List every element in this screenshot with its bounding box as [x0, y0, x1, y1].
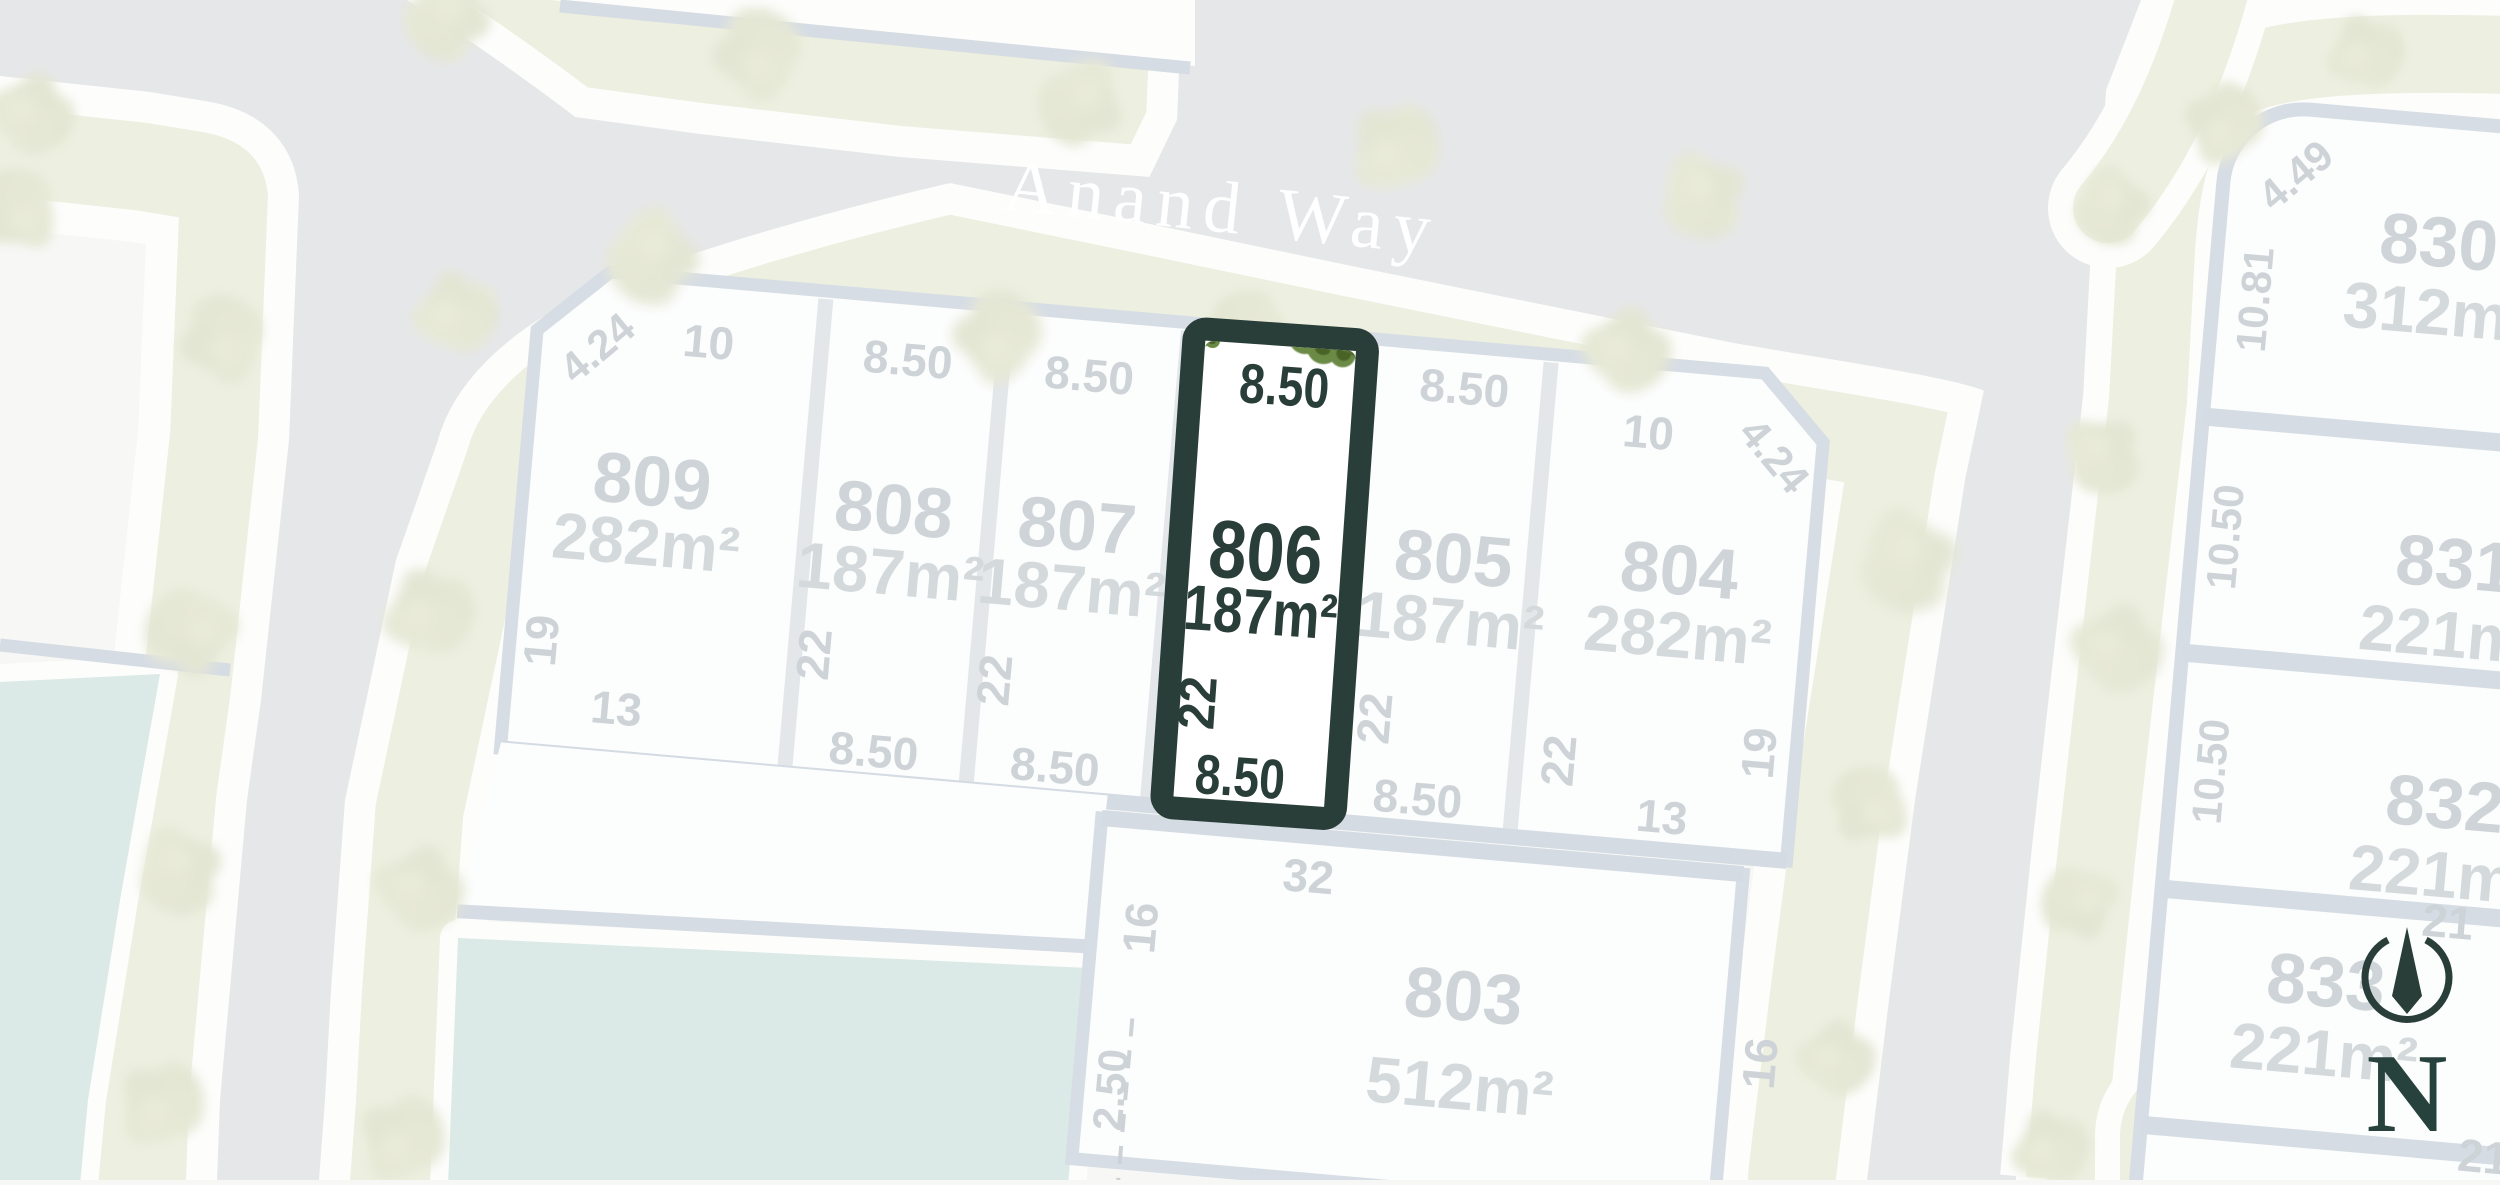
- svg-text:22: 22: [1530, 733, 1586, 789]
- svg-text:187m²: 187m²: [1181, 571, 1340, 654]
- svg-text:8.50: 8.50: [1371, 769, 1465, 829]
- svg-text:21: 21: [2456, 1129, 2500, 1180]
- svg-text:8.50: 8.50: [1193, 742, 1287, 811]
- svg-text:22: 22: [786, 627, 842, 683]
- svg-text:13: 13: [589, 680, 645, 736]
- svg-text:22: 22: [1346, 691, 1402, 747]
- svg-text:8.50: 8.50: [1237, 351, 1331, 420]
- svg-text:16: 16: [1732, 1036, 1788, 1092]
- svg-text:8.50: 8.50: [1042, 345, 1136, 405]
- svg-text:19: 19: [1731, 725, 1787, 781]
- svg-text:803: 803: [1401, 952, 1526, 1041]
- svg-text:10.50: 10.50: [2182, 717, 2238, 826]
- svg-text:8.50: 8.50: [1008, 737, 1102, 797]
- svg-text:N: N: [2367, 1032, 2448, 1156]
- svg-text:10: 10: [681, 314, 737, 370]
- svg-text:10.50: 10.50: [2197, 482, 2253, 591]
- svg-text:2.50: 2.50: [1084, 1047, 1138, 1133]
- svg-text:16: 16: [1112, 900, 1168, 956]
- svg-text:8.50: 8.50: [861, 330, 955, 390]
- svg-text:32: 32: [1281, 848, 1337, 904]
- svg-text:8.50: 8.50: [1418, 358, 1512, 418]
- svg-text:19: 19: [513, 613, 569, 669]
- svg-text:10: 10: [1621, 404, 1677, 460]
- svg-text:22: 22: [1167, 674, 1229, 731]
- svg-text:22: 22: [966, 652, 1022, 708]
- svg-text:10.81: 10.81: [2227, 245, 2283, 354]
- svg-text:13: 13: [1634, 789, 1690, 845]
- svg-text:8.50: 8.50: [827, 721, 921, 781]
